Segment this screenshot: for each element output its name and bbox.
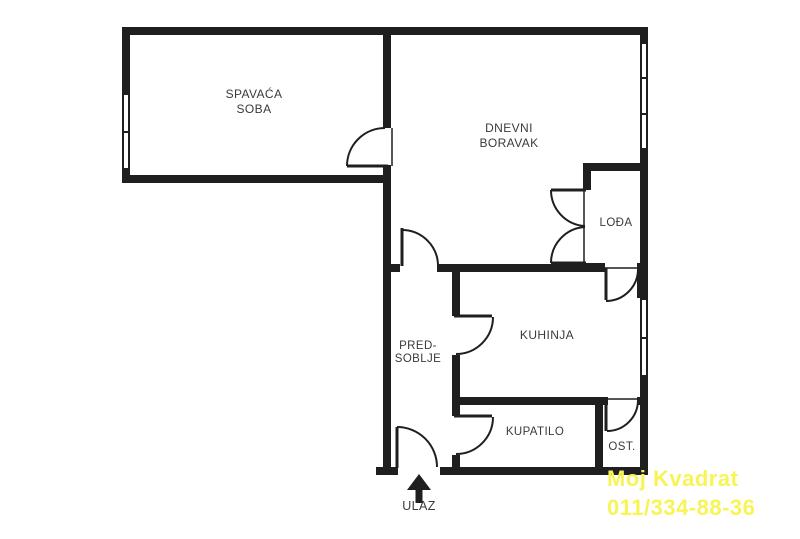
kitchen-upper-door-arc: [606, 269, 638, 301]
room-label-hallway: PRED- SOBLJE: [395, 340, 442, 366]
loggia-door-lower-arc: [551, 227, 585, 263]
bathroom-door-arc: [456, 417, 493, 454]
room-label-kitchen: KUHINJA: [520, 328, 574, 343]
room-label-living-room: DNEVNI BORAVAK: [479, 121, 538, 151]
floor-plan: SPAVAĆA SOBA DNEVNI BORAVAK LOĐA PRED- S…: [0, 0, 800, 539]
entrance-label: ULAZ: [402, 499, 436, 514]
kitchen-door-arc: [456, 317, 493, 354]
watermark-phone: 011/334-88-36: [607, 493, 755, 522]
room-label-loggia: LOĐA: [600, 217, 633, 230]
room-label-bathroom: KUPATILO: [506, 426, 564, 439]
room-label-storage: OST.: [608, 441, 635, 454]
watermark: Moj Kvadrat 011/334-88-36: [607, 464, 755, 522]
living-room-door-arc: [402, 230, 438, 266]
watermark-company: Moj Kvadrat: [607, 464, 755, 493]
storage-door-arc: [607, 400, 638, 431]
room-label-bedroom: SPAVAĆA SOBA: [226, 87, 283, 117]
door-swing-layer: [0, 0, 800, 539]
bedroom-door-arc: [347, 128, 385, 166]
loggia-door-upper-arc: [551, 190, 585, 226]
entrance-door-arc: [397, 427, 437, 467]
